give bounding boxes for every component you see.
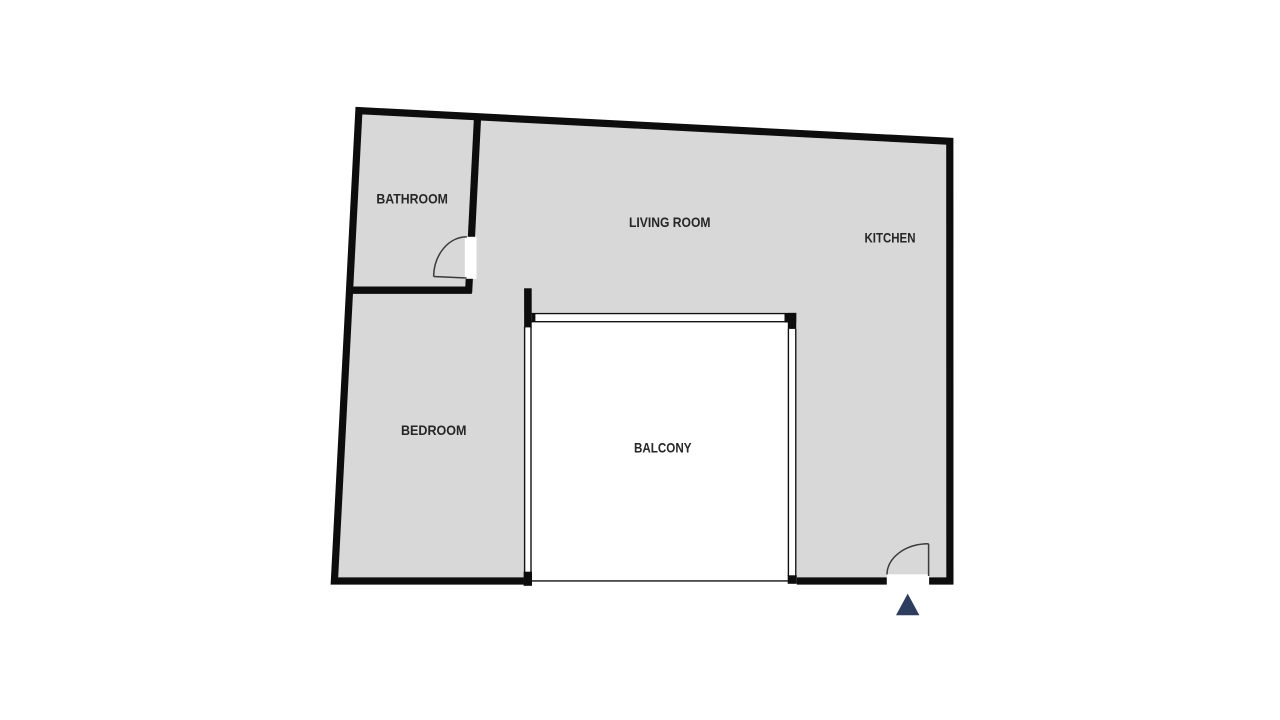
- svg-text:BATHROOM: BATHROOM: [376, 192, 448, 207]
- svg-text:BEDROOM: BEDROOM: [401, 423, 467, 438]
- svg-text:LIVING ROOM: LIVING ROOM: [629, 215, 711, 230]
- svg-text:KITCHEN: KITCHEN: [865, 231, 916, 246]
- svg-text:BALCONY: BALCONY: [634, 441, 692, 456]
